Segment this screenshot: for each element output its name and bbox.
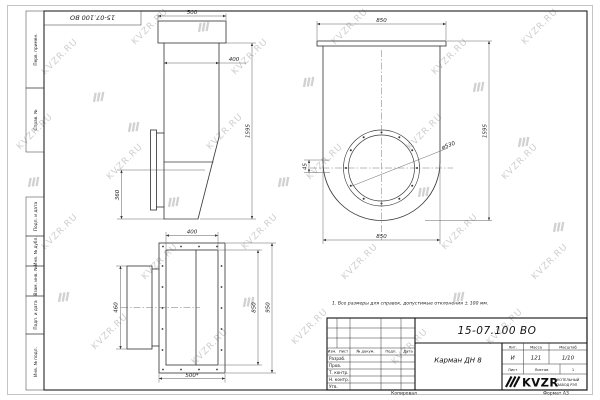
sheets-label: Листов [535, 368, 549, 372]
margin-label: Подп. и дата [33, 202, 39, 232]
lit-label: Лит. [508, 345, 517, 349]
kvzr-logo-watermark [166, 194, 182, 209]
title-doc-number: 15-07.100 ВО [458, 325, 537, 337]
kvzr-watermark-text: KVZR.RU [405, 112, 445, 152]
dim-side-body-width: 400 [229, 57, 240, 63]
dim-front-offset: 45 [303, 163, 309, 170]
lit-value: И [511, 356, 515, 362]
company-name-line1: КОТЕЛЬНЫЙ [557, 377, 580, 382]
col-izm: Изм. [328, 349, 337, 353]
kvzr-watermark-text: KVZR.RU [305, 142, 345, 182]
kvzr-watermark-text: KVZR.RU [105, 142, 145, 182]
scale-label: Масштаб [559, 345, 577, 349]
margin-label: Инв. № подл. [33, 347, 39, 377]
row-prov: Пров. [329, 363, 341, 368]
kvzr-logo-watermark [301, 74, 317, 89]
dim-plan-bottom-width: 500* [185, 373, 198, 379]
kvzr-logo-watermark [416, 184, 432, 199]
kvzr-watermark-text: KVZR.RU [290, 307, 330, 347]
kvzr-logo-watermark [91, 89, 107, 104]
dim-plan-inner-height: 850 [252, 302, 258, 313]
sheets-value: 1 [572, 368, 574, 372]
dim-plan-top-width: 400 [187, 230, 198, 236]
kvzr-watermark-text: KVZR.RU [530, 242, 570, 282]
kvzr-watermark-text: KVZR.RU [500, 142, 540, 182]
kvzr-watermark-text: KVZR.RU [205, 112, 245, 152]
col-date: Дата [403, 349, 413, 353]
kvzr-logo-watermark [26, 174, 42, 189]
kvzr-logo-watermark [551, 219, 567, 234]
dim-side-lower-height: 360 [115, 189, 121, 200]
col-doc: № докум. [356, 349, 374, 353]
row-utv: Утв. [329, 384, 338, 389]
copied-label: Копировал [391, 391, 417, 397]
company-name-line2: ЗАВОД РЭП [557, 383, 578, 387]
dim-front-height: 1595 [483, 124, 489, 138]
kvzr-watermark-text: KVZR.RU [240, 212, 280, 252]
mass-value: 121 [531, 356, 542, 362]
stamp-doc-number: 15-07.100 ВО [70, 13, 115, 21]
kvzr-watermark-text: KVZR.RU [340, 242, 380, 282]
dim-plan-outer-height: 950 [266, 302, 272, 313]
dim-front-circle-diameter: ø530 [440, 141, 456, 152]
kvzr-logo-watermark [276, 174, 292, 189]
drawing-sheet: KVZR.RU KVZR.RU KVZR.RU KVZR.RU KVZR.RU … [0, 0, 600, 400]
kvzr-logo-watermark [126, 119, 142, 134]
col-list: Лист [339, 349, 349, 353]
margin-label: Взам. инв. № [33, 266, 39, 296]
row-nkontr: Н. контр. [329, 377, 349, 382]
company-logo-text: KVZR [522, 376, 559, 390]
sheet-label: Лист [508, 368, 518, 372]
scale-value: 1/10 [562, 356, 575, 362]
kvzr-logo-watermark [471, 79, 487, 94]
margin-label: Инв. № дубл. [33, 236, 39, 265]
dim-side-flange-width: 500 [187, 10, 198, 16]
kvzr-watermark-text: KVZR.RU [430, 37, 470, 77]
mass-label: Масса [530, 345, 542, 349]
kvzr-logo-watermark [56, 289, 72, 304]
dim-plan-flange-height: 460 [114, 302, 120, 313]
format-label: Формат А3 [543, 391, 569, 397]
kvzr-logo: KVZR КОТЕЛЬНЫЙ ЗАВОД РЭП [506, 376, 580, 390]
bolt-holes [162, 246, 223, 371]
row-tkontr: Т. контр. [328, 370, 348, 375]
kvzr-watermark-text: KVZR.RU [130, 7, 170, 47]
kvzr-watermark-text: KVZR.RU [440, 212, 480, 252]
dim-front-bottom-width: 850 [376, 234, 387, 240]
col-podp: Подп. [385, 349, 396, 353]
kvzr-watermark-text: KVZR.RU [40, 37, 80, 77]
dim-side-height: 1595 [246, 124, 252, 138]
kvzr-watermark-text: KVZR.RU [90, 312, 130, 352]
kvzr-watermark-text: KVZR.RU [140, 242, 180, 282]
kvzr-watermark-text: KVZR.RU [40, 212, 80, 252]
top-left-stamp: 15-07.100 ВО [44, 11, 141, 25]
part-name: Карман ДН 8 [434, 357, 482, 365]
note-text: 1. Все размеры для справок, допустимые о… [332, 301, 488, 307]
kvzr-watermark-text: KVZR.RU [520, 7, 560, 47]
kvzr-logo-watermark [196, 19, 212, 34]
title-block: Изм. Лист № докум. Подп. Дата Разраб. Пр… [327, 318, 587, 390]
margin-label: Справ. № [33, 109, 39, 130]
drawing-sheet-svg: KVZR.RU KVZR.RU KVZR.RU KVZR.RU KVZR.RU … [0, 0, 600, 400]
dim-front-top-width: 850 [376, 18, 387, 24]
kvzr-watermark-text: KVZR.RU [390, 327, 430, 367]
watermark-layer: KVZR.RU KVZR.RU KVZR.RU KVZR.RU KVZR.RU … [15, 7, 570, 367]
front-view: ø530 45 850 1595 850 [303, 18, 493, 244]
margin-label: Подп. и дата [33, 300, 39, 330]
row-razrab: Разраб. [329, 356, 345, 361]
margin-label: Перв. примен. [33, 33, 39, 65]
